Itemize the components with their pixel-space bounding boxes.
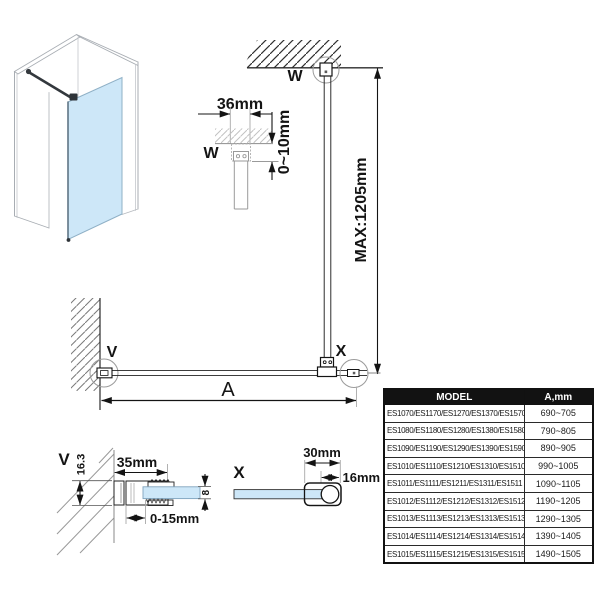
col-header-amm: A,mm: [524, 389, 593, 405]
dim-16mm-label: 16mm: [343, 470, 381, 485]
table-header-row: MODEL A,mm: [384, 389, 593, 405]
amm-cell: 1390~1405: [524, 528, 593, 546]
profile-wall-bracket: [114, 481, 124, 505]
model-cell: ES1080/ES1180/ES1280/ES1380/ES1580: [384, 422, 524, 440]
dim-16-3-label: 16.3: [76, 454, 88, 475]
model-table: MODEL A,mm ES1070/ES1170/ES1270/ES1370/E…: [383, 388, 594, 564]
plan-x-label: X: [336, 343, 347, 360]
amm-cell: 690~705: [524, 405, 593, 423]
dim-max-label: MAX:1205mm: [353, 158, 370, 263]
amm-cell: 890~905: [524, 440, 593, 458]
model-cell: ES1015/ES1115/ES1215/ES1315/ES1515: [384, 545, 524, 563]
model-cell: ES1014/ES1114/ES1214/ES1314/ES1514: [384, 528, 524, 546]
detail-x-bar-circle: [321, 486, 339, 504]
detail-x-label: X: [233, 463, 245, 482]
amm-cell: 790~805: [524, 422, 593, 440]
detail-v: V 16.3 35mm 0-15mm 8: [57, 448, 212, 555]
dim-0-15mm-label: 0-15mm: [150, 511, 199, 526]
table-row: ES1015/ES1115/ES1215/ES1315/ES15151490~1…: [384, 545, 593, 563]
table-row: ES1080/ES1180/ES1280/ES1380/ES1580790~80…: [384, 422, 593, 440]
detail-x-glass: [234, 490, 322, 499]
amm-cell: 990~1005: [524, 457, 593, 475]
dim-36mm-label: 36mm: [217, 96, 263, 113]
iso-view: [15, 35, 139, 242]
detail-w: 36mm W 0~10mm: [198, 96, 293, 209]
plan-wall-hatch: [71, 298, 100, 391]
dim-a-label: A: [221, 379, 235, 401]
elevation-w-label: W: [287, 68, 303, 85]
amm-cell: 1490~1505: [524, 545, 593, 563]
iso-right-wall-top: [77, 35, 139, 66]
iso-support-bar: [29, 72, 73, 99]
detail-w-ceiling-hatch: [215, 129, 272, 144]
dim-0-10mm-label: 0~10mm: [276, 110, 293, 175]
amm-cell: 1290~1305: [524, 510, 593, 528]
detail-w-label: W: [203, 145, 219, 162]
table-row: ES1011/ES1111/ES1211/ES1311/ES15111090~1…: [384, 475, 593, 493]
model-cell: ES1012/ES1112/ES1212/ES1312/ES1512: [384, 492, 524, 510]
col-header-model: MODEL: [384, 389, 524, 405]
table-row: ES1014/ES1114/ES1214/ES1314/ES15141390~1…: [384, 528, 593, 546]
iso-bar-glass-clamp: [70, 94, 78, 101]
model-cell: ES1013/ES1113/ES1213/ES1313/ES1513: [384, 510, 524, 528]
iso-left-wall-top: [15, 35, 81, 75]
iso-bar-wall-mount: [26, 69, 31, 74]
table-row: ES1090/ES1190/ES1290/ES1390/ES1590890~90…: [384, 440, 593, 458]
amm-cell: 1190~1205: [524, 492, 593, 510]
detail-v-glass: [143, 487, 200, 499]
model-cell: ES1090/ES1190/ES1290/ES1390/ES1590: [384, 440, 524, 458]
table-row: ES1070/ES1170/ES1270/ES1370/ES1570690~70…: [384, 405, 593, 423]
detail-v-label: V: [58, 450, 70, 469]
ceiling-bracket: [320, 63, 332, 76]
installation-diagram: 36mm W 0~10mm W MAX:1205mm: [0, 0, 600, 600]
table-row: ES1010/ES1110/ES1210/ES1310/ES1510990~10…: [384, 457, 593, 475]
detail-x: X 30mm 16mm: [233, 445, 380, 506]
model-cell: ES1010/ES1110/ES1210/ES1310/ES1510: [384, 457, 524, 475]
model-cell: ES1011/ES1111/ES1211/ES1311/ES1511: [384, 475, 524, 493]
table-row: ES1012/ES1112/ES1212/ES1312/ES15121190~1…: [384, 492, 593, 510]
dim-30mm-label: 30mm: [303, 445, 341, 460]
plan-v-label: V: [107, 344, 118, 361]
dim-35mm-label: 35mm: [117, 454, 157, 470]
model-cell: ES1070/ES1170/ES1270/ES1370/ES1570: [384, 405, 524, 423]
amm-cell: 1090~1105: [524, 475, 593, 493]
iso-floor-anchor: [67, 238, 71, 242]
elevation-view: W MAX:1205mm: [243, 40, 383, 374]
table-row: ES1013/ES1113/ES1213/ES1313/ES15131290~1…: [384, 510, 593, 528]
bar-pivot-block: [318, 367, 337, 377]
plan-view: V X A: [71, 298, 381, 410]
iso-glass-panel: [68, 78, 122, 240]
dim-8-label: 8: [201, 489, 212, 495]
